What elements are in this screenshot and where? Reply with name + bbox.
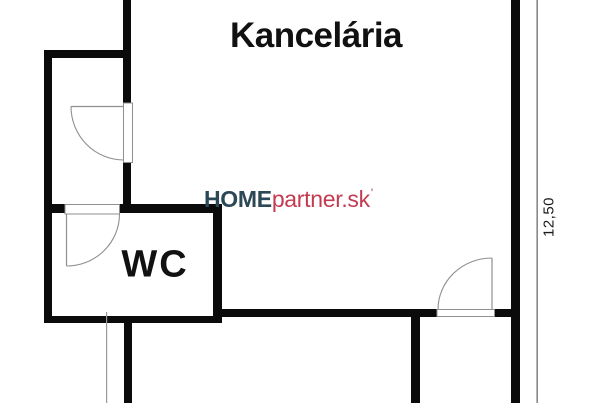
room-label-wc: WC bbox=[121, 244, 188, 287]
wall-wc-bottom bbox=[44, 316, 222, 323]
wall-office-bottom-left bbox=[213, 309, 437, 317]
wall-wc-right bbox=[213, 204, 222, 323]
watermark-prime-mark: ' bbox=[371, 186, 373, 200]
door-left-room-opening bbox=[124, 103, 133, 163]
wall-lower-left-partition bbox=[124, 317, 132, 403]
extension-line bbox=[106, 312, 107, 403]
door-left-room bbox=[71, 103, 133, 163]
wall-left-room-top bbox=[44, 50, 131, 58]
door-wc-swing-arc bbox=[67, 214, 120, 266]
watermark-partner-text: partner.sk bbox=[272, 186, 370, 212]
dimension-line bbox=[537, 0, 538, 403]
floor-plan: Kancelária WC HOMEpartner.sk' 12,50 bbox=[0, 0, 600, 403]
door-left-room-swing-arc bbox=[71, 107, 124, 161]
door-office-entrance-swing-arc bbox=[438, 258, 492, 310]
door-wc-opening bbox=[65, 205, 120, 215]
watermark: HOMEpartner.sk' bbox=[204, 187, 373, 211]
dimension-label: 12,50 bbox=[541, 197, 558, 237]
door-office-entrance bbox=[437, 258, 495, 317]
wall-outer-left bbox=[44, 50, 52, 323]
wall-wc-top-left-stub bbox=[44, 204, 66, 213]
room-label-office: Kancelária bbox=[230, 16, 402, 56]
watermark-home-text: HOME bbox=[204, 186, 272, 212]
door-office-entrance-opening bbox=[437, 310, 495, 317]
wall-lower-mid-partition bbox=[411, 309, 420, 403]
door-wc bbox=[65, 205, 120, 267]
wall-outer-right bbox=[511, 0, 520, 403]
